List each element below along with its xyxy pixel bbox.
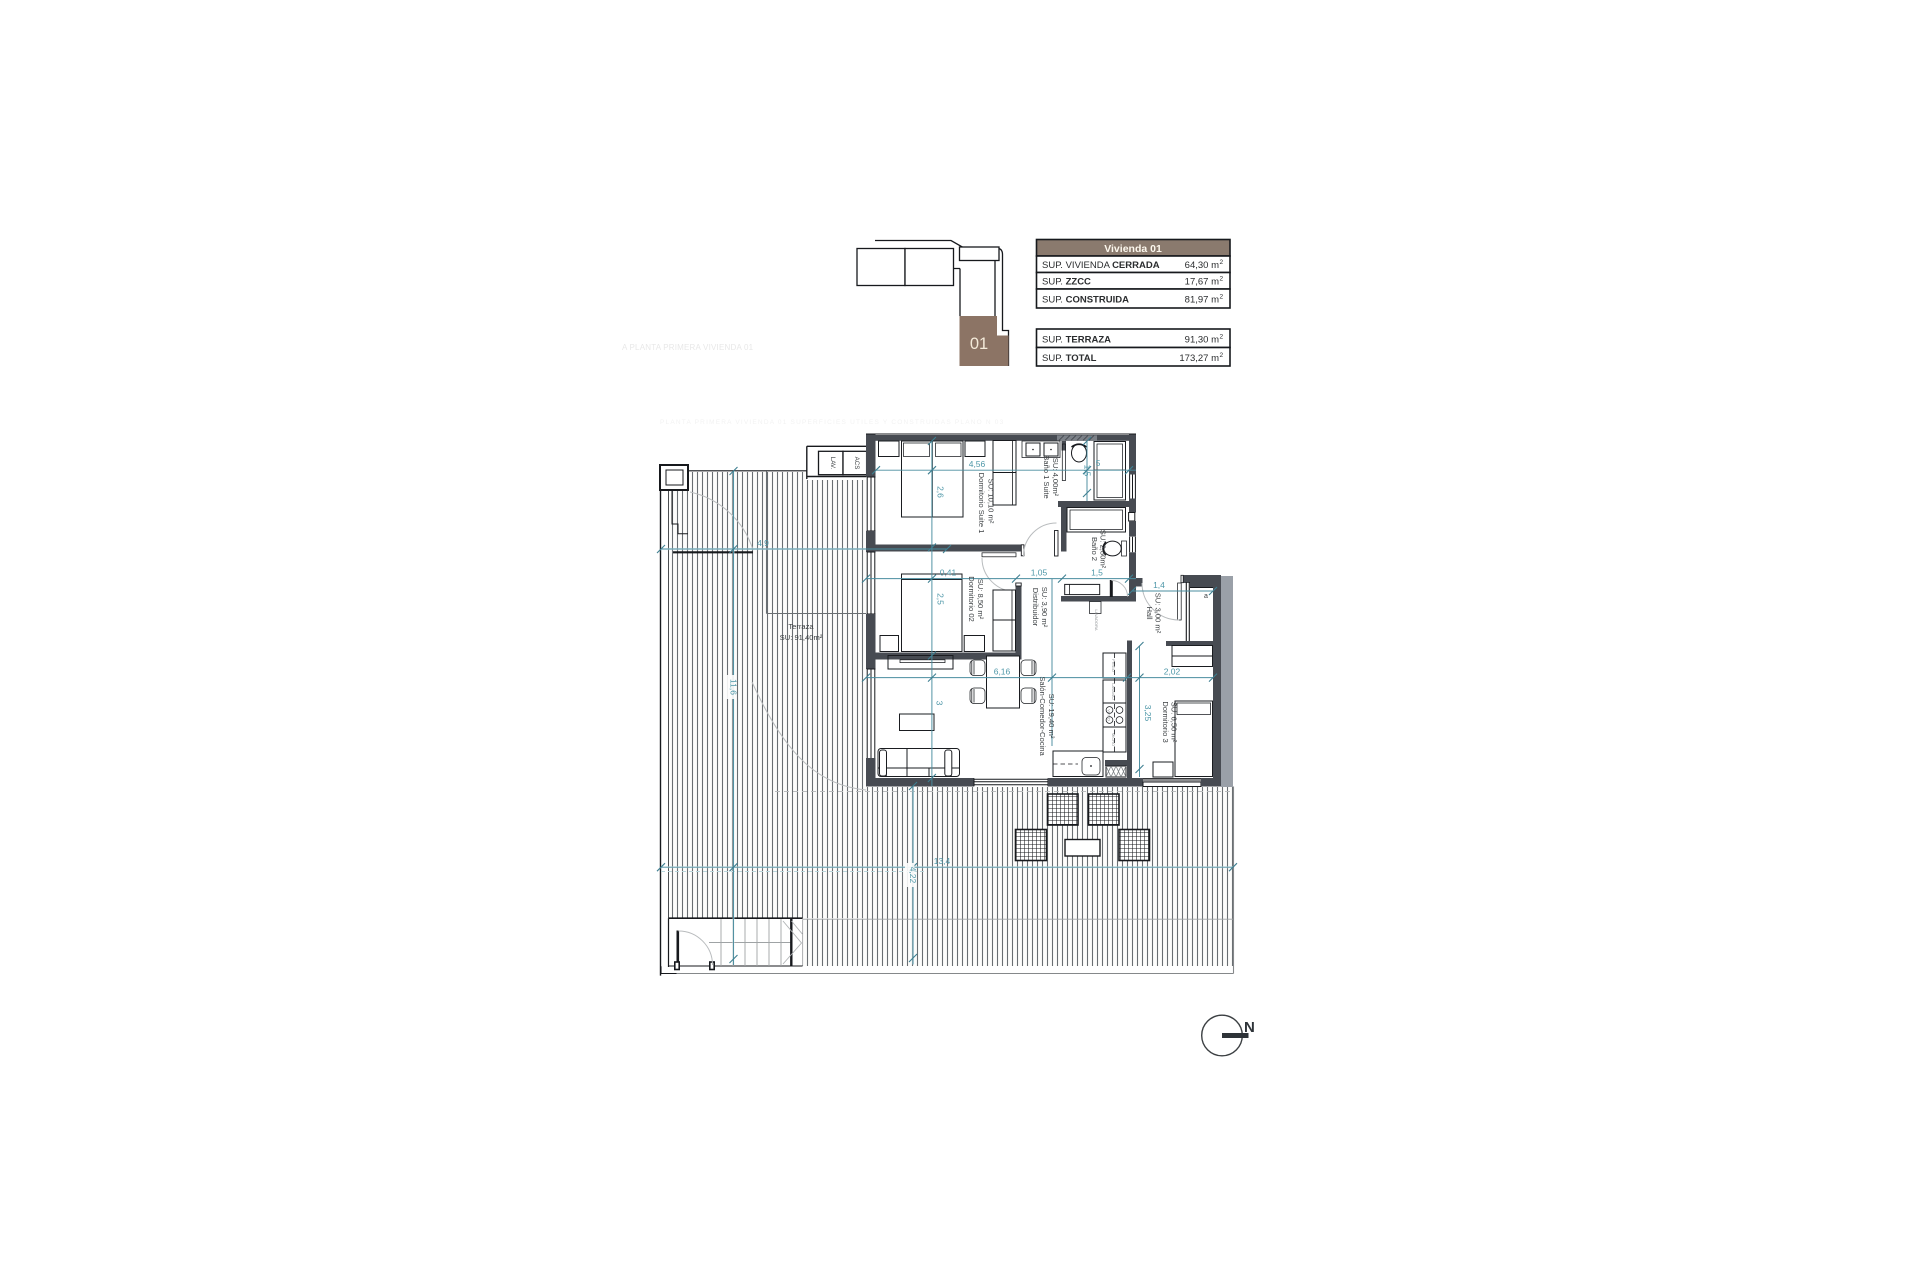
svg-text:LAV.: LAV.: [829, 457, 836, 470]
svg-text:A PLANTA PRIMERA VIVIENDA 0: A PLANTA PRIMERA VIVIENDA 01: [622, 343, 754, 352]
svg-text:SU: 19,40 m²: SU: 19,40 m²: [1047, 694, 1056, 739]
svg-text:ACS: ACS: [853, 457, 860, 470]
svg-text:1,05: 1,05: [1031, 567, 1048, 577]
svg-text:1,4: 1,4: [1153, 580, 1165, 590]
svg-text:SUP. VIVIENDA CERRADA: SUP. VIVIENDA CERRADA: [1042, 260, 1160, 271]
svg-text:SU: 2,80m²: SU: 2,80m²: [1099, 530, 1108, 569]
svg-text:Distribuidor: Distribuidor: [1031, 588, 1040, 627]
svg-text:SUP. TERRAZA: SUP. TERRAZA: [1042, 334, 1111, 345]
svg-text:VITRO: VITRO: [1107, 709, 1111, 721]
svg-text:PLANTA PRIMERA VIVIENDA 01: PLANTA PRIMERA VIVIENDA 01 SUPERFICIES U…: [660, 419, 1004, 426]
svg-text:2: 2: [1220, 276, 1224, 283]
svg-text:173,27 m: 173,27 m: [1179, 353, 1219, 364]
svg-text:2,6: 2,6: [936, 486, 946, 498]
svg-text:N: N: [1244, 1019, 1255, 1036]
svg-text:5: 5: [1096, 458, 1101, 468]
svg-text:1,5: 1,5: [1083, 465, 1093, 477]
svg-text:LAVADORA: LAVADORA: [1094, 609, 1099, 631]
svg-text:13,4: 13,4: [934, 856, 951, 866]
svg-text:4,9: 4,9: [757, 538, 769, 548]
svg-text:Terraza: Terraza: [788, 622, 814, 631]
svg-text:SUP. CONSTRUIDA: SUP. CONSTRUIDA: [1042, 295, 1129, 306]
svg-text:a: a: [1204, 593, 1208, 600]
svg-text:SU: 4,00m²: SU: 4,00m²: [1051, 458, 1060, 497]
svg-text:81,97 m: 81,97 m: [1185, 295, 1219, 306]
svg-text:3: 3: [935, 701, 945, 706]
svg-text:SUP. TOTAL: SUP. TOTAL: [1042, 353, 1097, 364]
svg-text:91,30 m: 91,30 m: [1185, 334, 1219, 345]
svg-text:FRIGO: FRIGO: [1111, 659, 1116, 672]
svg-text:2: 2: [1220, 352, 1224, 359]
svg-text:SUP. ZZCC: SUP. ZZCC: [1042, 277, 1091, 288]
svg-text:SU: 91,40m²: SU: 91,40m²: [780, 633, 823, 642]
svg-text:2,5: 2,5: [936, 593, 946, 605]
svg-text:2: 2: [1220, 259, 1224, 266]
svg-text:1,5: 1,5: [1091, 567, 1103, 577]
svg-text:64,30 m: 64,30 m: [1185, 260, 1219, 271]
svg-text:MICRO: MICRO: [1111, 733, 1116, 746]
svg-text:Dormitorio Suite 1: Dormitorio Suite 1: [977, 473, 986, 534]
svg-text:Salón-Comedor-Cocina: Salón-Comedor-Cocina: [1038, 676, 1047, 756]
svg-text:4,56: 4,56: [969, 459, 986, 469]
svg-text:Baño 1 Suite: Baño 1 Suite: [1042, 455, 1051, 499]
svg-text:SU: 3,00 m²: SU: 3,00 m²: [1154, 593, 1163, 634]
svg-text:Vivienda 01: Vivienda 01: [1104, 243, 1162, 255]
svg-text:SU: 6,50 m²: SU: 6,50 m²: [1170, 702, 1179, 743]
svg-text:4,22: 4,22: [908, 867, 918, 884]
svg-text:Dormitorio 02: Dormitorio 02: [967, 576, 976, 622]
svg-text:SU: 3,90 m²: SU: 3,90 m²: [1040, 587, 1049, 628]
svg-text:2,02: 2,02: [1164, 666, 1181, 676]
svg-text:17,67 m: 17,67 m: [1185, 277, 1219, 288]
svg-text:Hall: Hall: [1145, 606, 1154, 619]
svg-text:0,41: 0,41: [940, 567, 957, 577]
svg-text:Dormitorio 3: Dormitorio 3: [1161, 701, 1170, 742]
svg-text:SU: 10,10 m²: SU: 10,10 m²: [987, 479, 996, 524]
svg-text:2: 2: [1220, 333, 1224, 340]
svg-text:SU: 8,50 m²: SU: 8,50 m²: [976, 579, 985, 620]
svg-text:01: 01: [970, 335, 988, 353]
svg-text:11,6: 11,6: [729, 679, 739, 695]
svg-text:3,25: 3,25: [1143, 705, 1153, 722]
svg-text:LAVAVAJ: LAVAVAJ: [1111, 683, 1116, 699]
svg-text:6,16: 6,16: [994, 666, 1011, 676]
svg-text:Baño 2: Baño 2: [1090, 537, 1099, 561]
svg-text:2: 2: [1220, 294, 1224, 301]
